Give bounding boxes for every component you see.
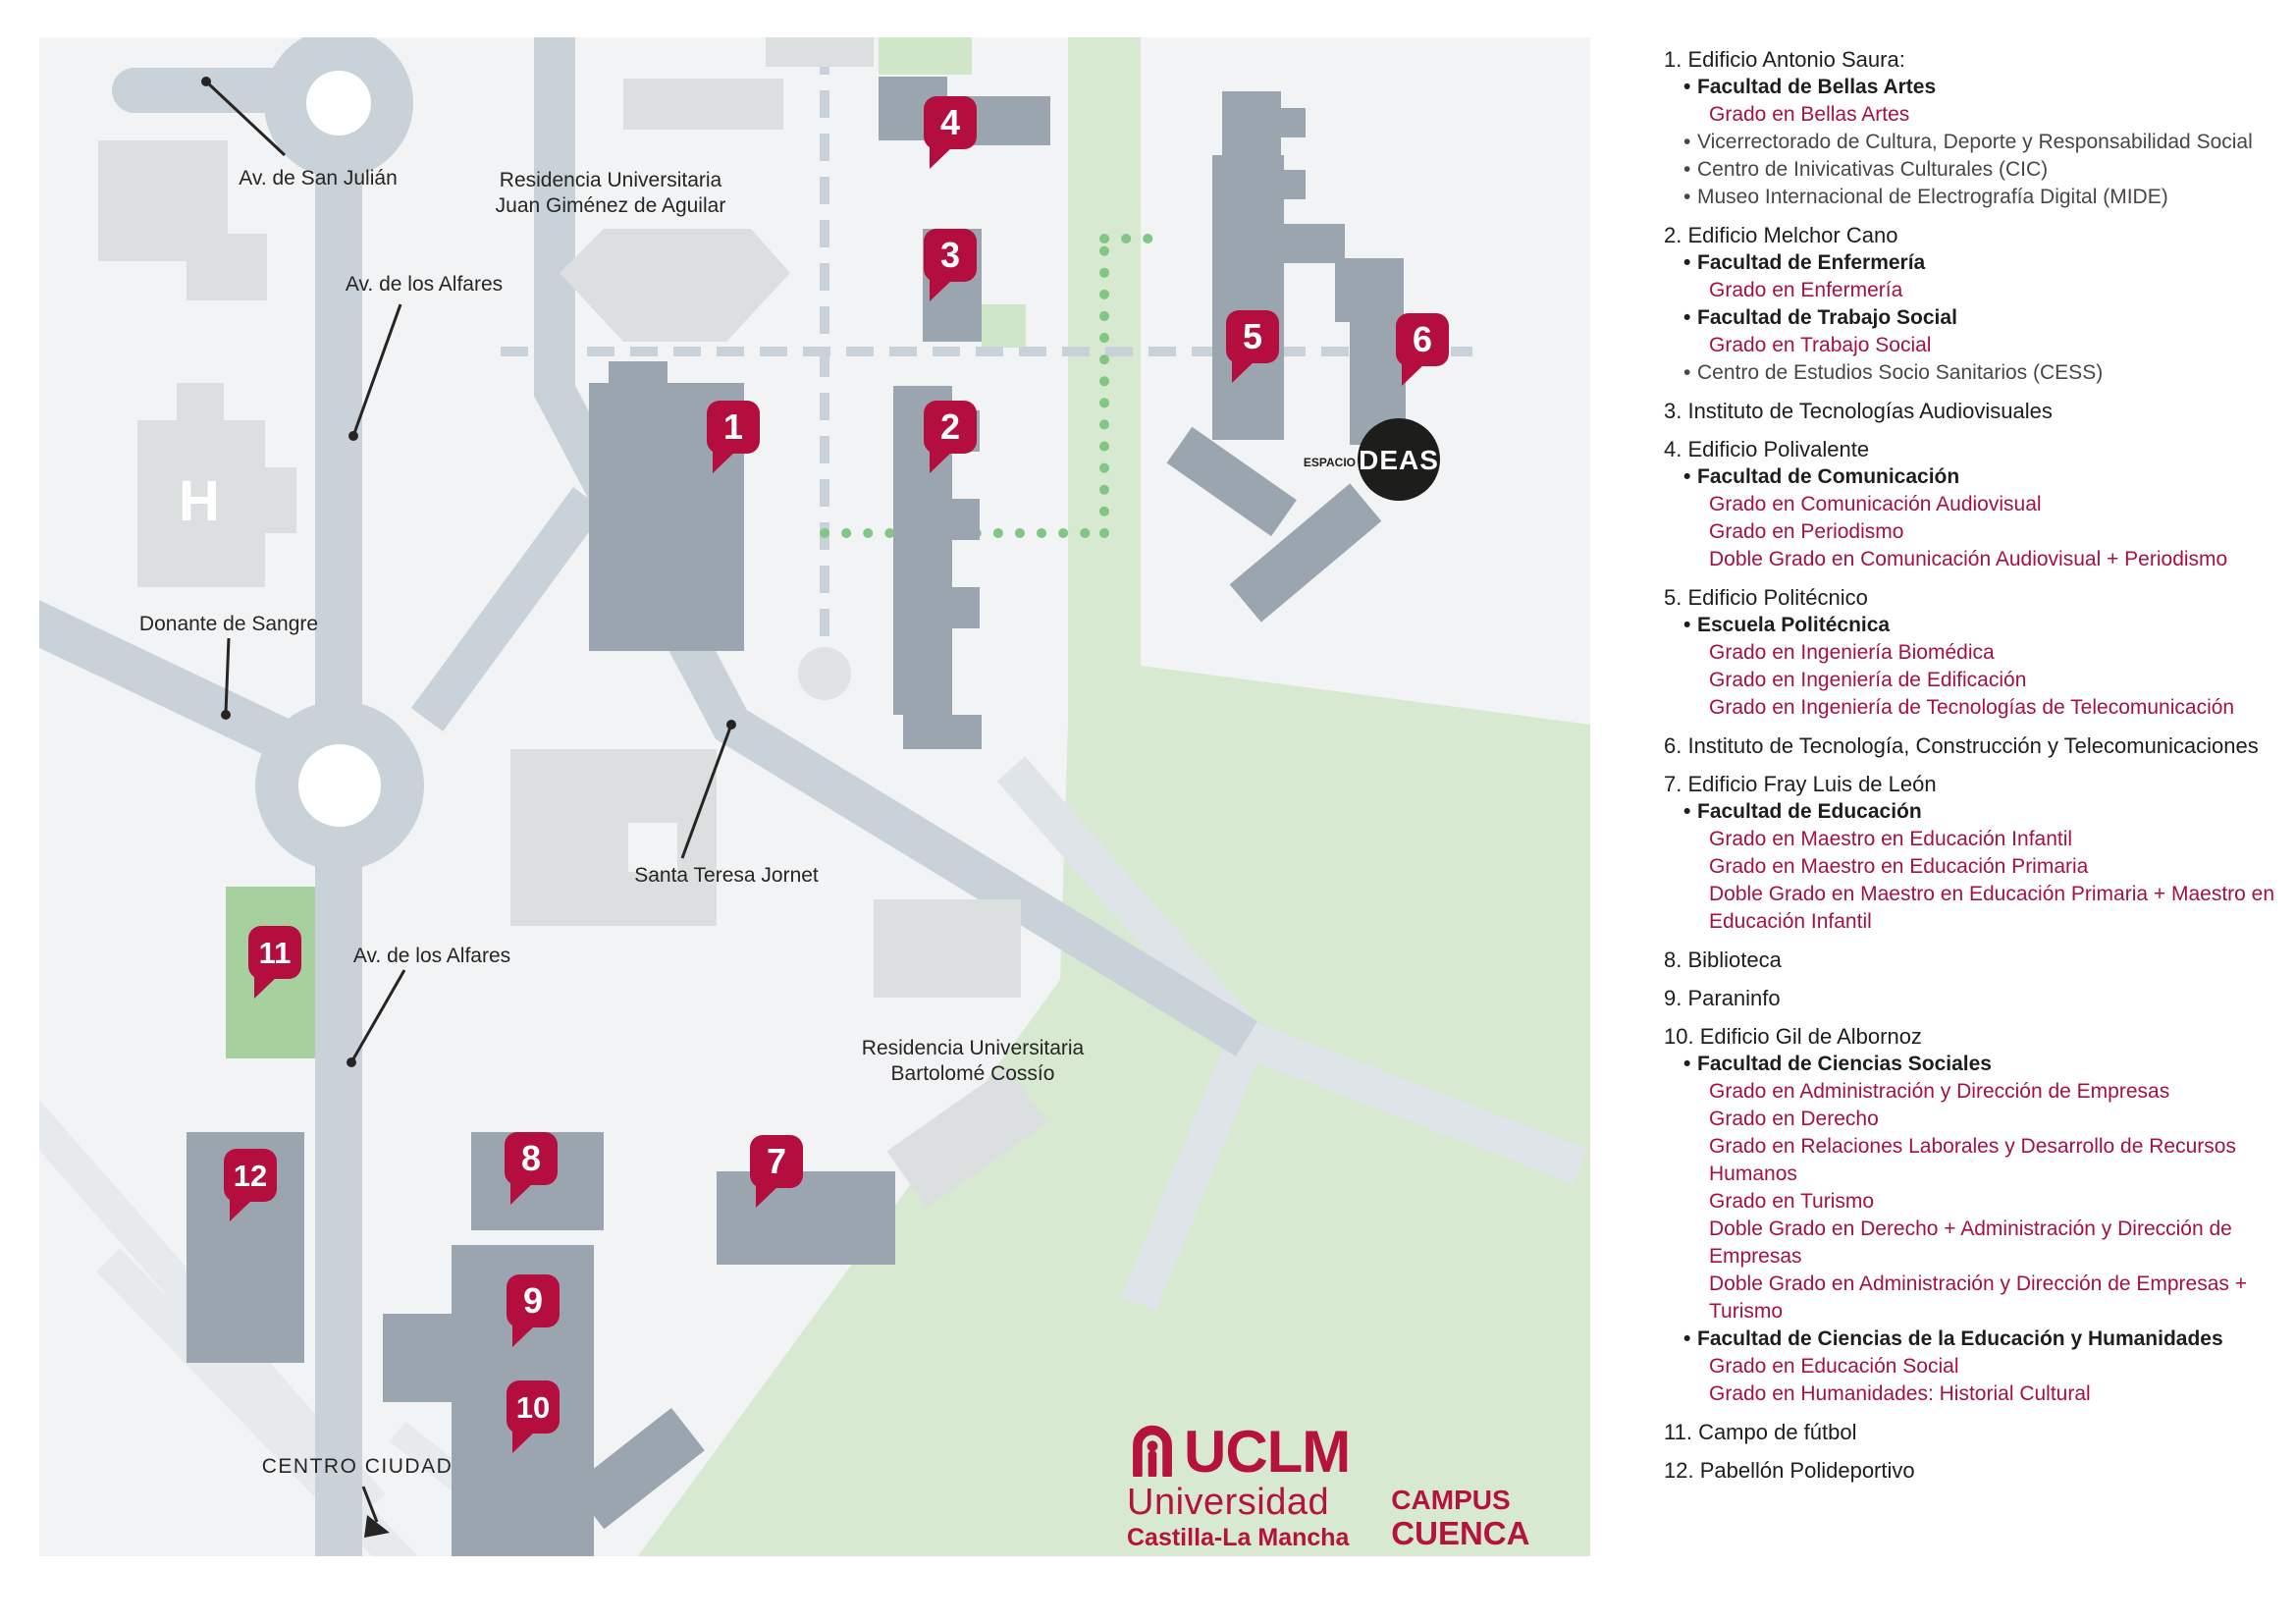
legend-degree: Grado en Derecho: [1664, 1106, 2292, 1133]
legend-degree: Grado en Maestro en Educación Infantil: [1664, 826, 2292, 853]
legend-item-title: 12. Pabellón Polideportivo: [1664, 1456, 2292, 1485]
legend-degree: Grado en Bellas Artes: [1664, 101, 2292, 129]
legend-degree: Grado en Turismo: [1664, 1188, 2292, 1216]
legend-degree: Grado en Ingeniería de Tecnologías de Te…: [1664, 694, 2292, 722]
svg-text:10: 10: [516, 1390, 550, 1425]
santa-teresa-building: [510, 749, 717, 926]
castilla-la-mancha-text: Castilla-La Mancha: [1127, 1523, 1349, 1552]
svg-text:8: 8: [521, 1138, 541, 1178]
legend-item-title: 1. Edificio Antonio Saura:: [1664, 45, 2292, 74]
legend-degree: Grado en Periodismo: [1664, 518, 2292, 546]
legend-unit: Vicerrectorado de Cultura, Deporte y Res…: [1664, 129, 2292, 156]
universidad-text: Universidad: [1127, 1482, 1329, 1523]
legend-degree: Grado en Administración y Dirección de E…: [1664, 1078, 2292, 1106]
legend-item-6: 6. Instituto de Tecnología, Construcción…: [1664, 731, 2292, 760]
legend-item-title: 4. Edificio Polivalente: [1664, 435, 2292, 463]
campus-text: CAMPUS: [1391, 1484, 1529, 1517]
svg-text:4: 4: [940, 102, 960, 142]
label-av-alfares-2: Av. de los Alfares: [353, 945, 510, 967]
legend-item-9: 9. Paraninfo: [1664, 984, 2292, 1012]
label-donante: Donante de Sangre: [139, 613, 318, 635]
legend-item-title: 3. Instituto de Tecnologías Audiovisuale…: [1664, 397, 2292, 425]
legend-unit: Facultad de Ciencias de la Educación y H…: [1664, 1326, 2292, 1353]
legend-item-title: 11. Campo de fútbol: [1664, 1418, 2292, 1446]
uclm-mark-icon: [1127, 1422, 1178, 1482]
legend-item-title: 7. Edificio Fray Luis de León: [1664, 770, 2292, 798]
legend-degree: Grado en Humanidades: Historial Cultural: [1664, 1380, 2292, 1408]
legend-degree: Grado en Educación Social: [1664, 1353, 2292, 1380]
legend-item-5: 5. Edificio PolitécnicoEscuela Politécni…: [1664, 583, 2292, 722]
label-av-alfares-1: Av. de los Alfares: [346, 273, 503, 296]
label-residencia-juan-2: Juan Giménez de Aguilar: [496, 194, 726, 217]
label-residencia-juan-1: Residencia Universitaria: [500, 169, 722, 191]
label-santa-teresa: Santa Teresa Jornet: [634, 864, 819, 887]
legend-item-11: 11. Campo de fútbol: [1664, 1418, 2292, 1446]
svg-text:9: 9: [523, 1280, 543, 1321]
legend-degree: Grado en Ingeniería Biomédica: [1664, 639, 2292, 667]
uclm-logo: UCLM Universidad Castilla-La Mancha CAMP…: [1127, 1422, 1529, 1552]
svg-text:7: 7: [767, 1141, 786, 1181]
legend-degree: Grado en Trabajo Social: [1664, 332, 2292, 359]
legend-unit: Facultad de Comunicación: [1664, 463, 2292, 491]
legend-item-title: 9. Paraninfo: [1664, 984, 2292, 1012]
building-7: [717, 1171, 895, 1265]
svg-text:11: 11: [259, 936, 292, 970]
espacio-text: ESPACIO: [1304, 456, 1356, 469]
legend-unit: Museo Internacional de Electrografía Dig…: [1664, 184, 2292, 211]
campus-map-svg: H Av. de San Julián Residencia Universit…: [39, 37, 1590, 1556]
legend-degree: Doble Grado en Maestro en Educación Prim…: [1664, 881, 2292, 936]
label-av-san-julian: Av. de San Julián: [239, 167, 398, 189]
svg-text:12: 12: [234, 1159, 267, 1193]
hospital-h-label: H: [179, 469, 220, 533]
legend-degree: Grado en Relaciones Laborales y Desarrol…: [1664, 1133, 2292, 1188]
svg-text:6: 6: [1413, 319, 1432, 359]
legend-unit: Facultad de Trabajo Social: [1664, 304, 2292, 332]
legend-degree: Doble Grado en Comunicación Audiovisual …: [1664, 546, 2292, 573]
legend-item-12: 12. Pabellón Polideportivo: [1664, 1456, 2292, 1485]
legend-degree: Grado en Enfermería: [1664, 277, 2292, 304]
legend-unit: Centro de Inivicativas Culturales (CIC): [1664, 156, 2292, 184]
legend-degree: Grado en Comunicación Audiovisual: [1664, 491, 2292, 518]
legend-item-1: 1. Edificio Antonio Saura:Facultad de Be…: [1664, 45, 2292, 211]
legend-degree: Grado en Maestro en Educación Primaria: [1664, 853, 2292, 881]
campus-map: H Av. de San Julián Residencia Universit…: [39, 37, 1590, 1556]
legend-item-title: 10. Edificio Gil de Albornoz: [1664, 1022, 2292, 1051]
legend-degree: Doble Grado en Administración y Direcció…: [1664, 1271, 2292, 1326]
svg-text:2: 2: [940, 406, 960, 447]
legend-unit: Facultad de Educación: [1664, 798, 2292, 826]
svg-text:1: 1: [723, 406, 743, 447]
legend-unit: Facultad de Bellas Artes: [1664, 74, 2292, 101]
legend-item-7: 7. Edificio Fray Luis de LeónFacultad de…: [1664, 770, 2292, 936]
legend-item-title: 8. Biblioteca: [1664, 946, 2292, 974]
label-centro-ciudad: CENTRO CIUDAD: [262, 1455, 454, 1478]
legend-item-8: 8. Biblioteca: [1664, 946, 2292, 974]
legend-degree: Grado en Ingeniería de Edificación: [1664, 667, 2292, 694]
legend-item-title: 6. Instituto de Tecnología, Construcción…: [1664, 731, 2292, 760]
legend-unit: Centro de Estudios Socio Sanitarios (CES…: [1664, 359, 2292, 387]
legend-item-title: 2. Edificio Melchor Cano: [1664, 221, 2292, 249]
legend-item-4: 4. Edificio PolivalenteFacultad de Comun…: [1664, 435, 2292, 573]
cuenca-text: CUENCA: [1391, 1517, 1529, 1550]
uclm-wordmark: UCLM: [1184, 1425, 1350, 1480]
cul-de-sac: [798, 647, 851, 700]
legend-item-2: 2. Edificio Melchor CanoFacultad de Enfe…: [1664, 221, 2292, 387]
legend-item-3: 3. Instituto de Tecnologías Audiovisuale…: [1664, 397, 2292, 425]
svg-text:3: 3: [940, 235, 960, 275]
label-residencia-bart-2: Bartolomé Cossío: [891, 1062, 1055, 1085]
campus-map-poster: { "map": { "labels": { "av_san_julian": …: [0, 0, 2296, 1624]
legend: 1. Edificio Antonio Saura:Facultad de Be…: [1664, 45, 2292, 1485]
ideas-text: DEAS: [1359, 445, 1439, 475]
legend-degree: Doble Grado en Derecho + Administración …: [1664, 1216, 2292, 1271]
svg-text:5: 5: [1243, 316, 1262, 356]
label-residencia-bart-1: Residencia Universitaria: [862, 1037, 1085, 1059]
legend-item-title: 5. Edificio Politécnico: [1664, 583, 2292, 612]
legend-unit: Facultad de Enfermería: [1664, 249, 2292, 277]
residencia-bartolome-building: [874, 899, 1021, 998]
legend-item-10: 10. Edificio Gil de AlbornozFacultad de …: [1664, 1022, 2292, 1408]
legend-unit: Facultad de Ciencias Sociales: [1664, 1051, 2292, 1078]
legend-unit: Escuela Politécnica: [1664, 612, 2292, 639]
